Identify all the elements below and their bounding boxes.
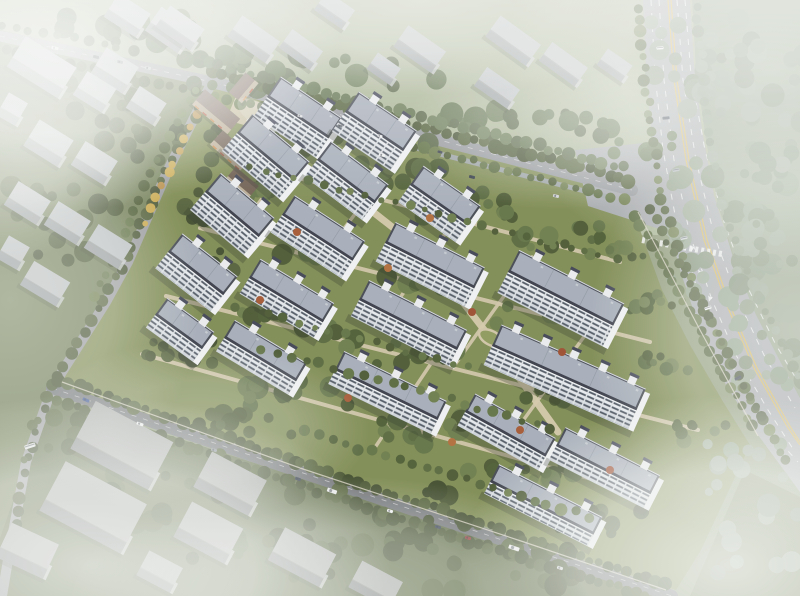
aerial-site-rendering — [0, 0, 800, 596]
atmosphere-tint — [0, 0, 800, 596]
fog-layer — [0, 0, 800, 596]
rendering-svg — [0, 0, 800, 596]
